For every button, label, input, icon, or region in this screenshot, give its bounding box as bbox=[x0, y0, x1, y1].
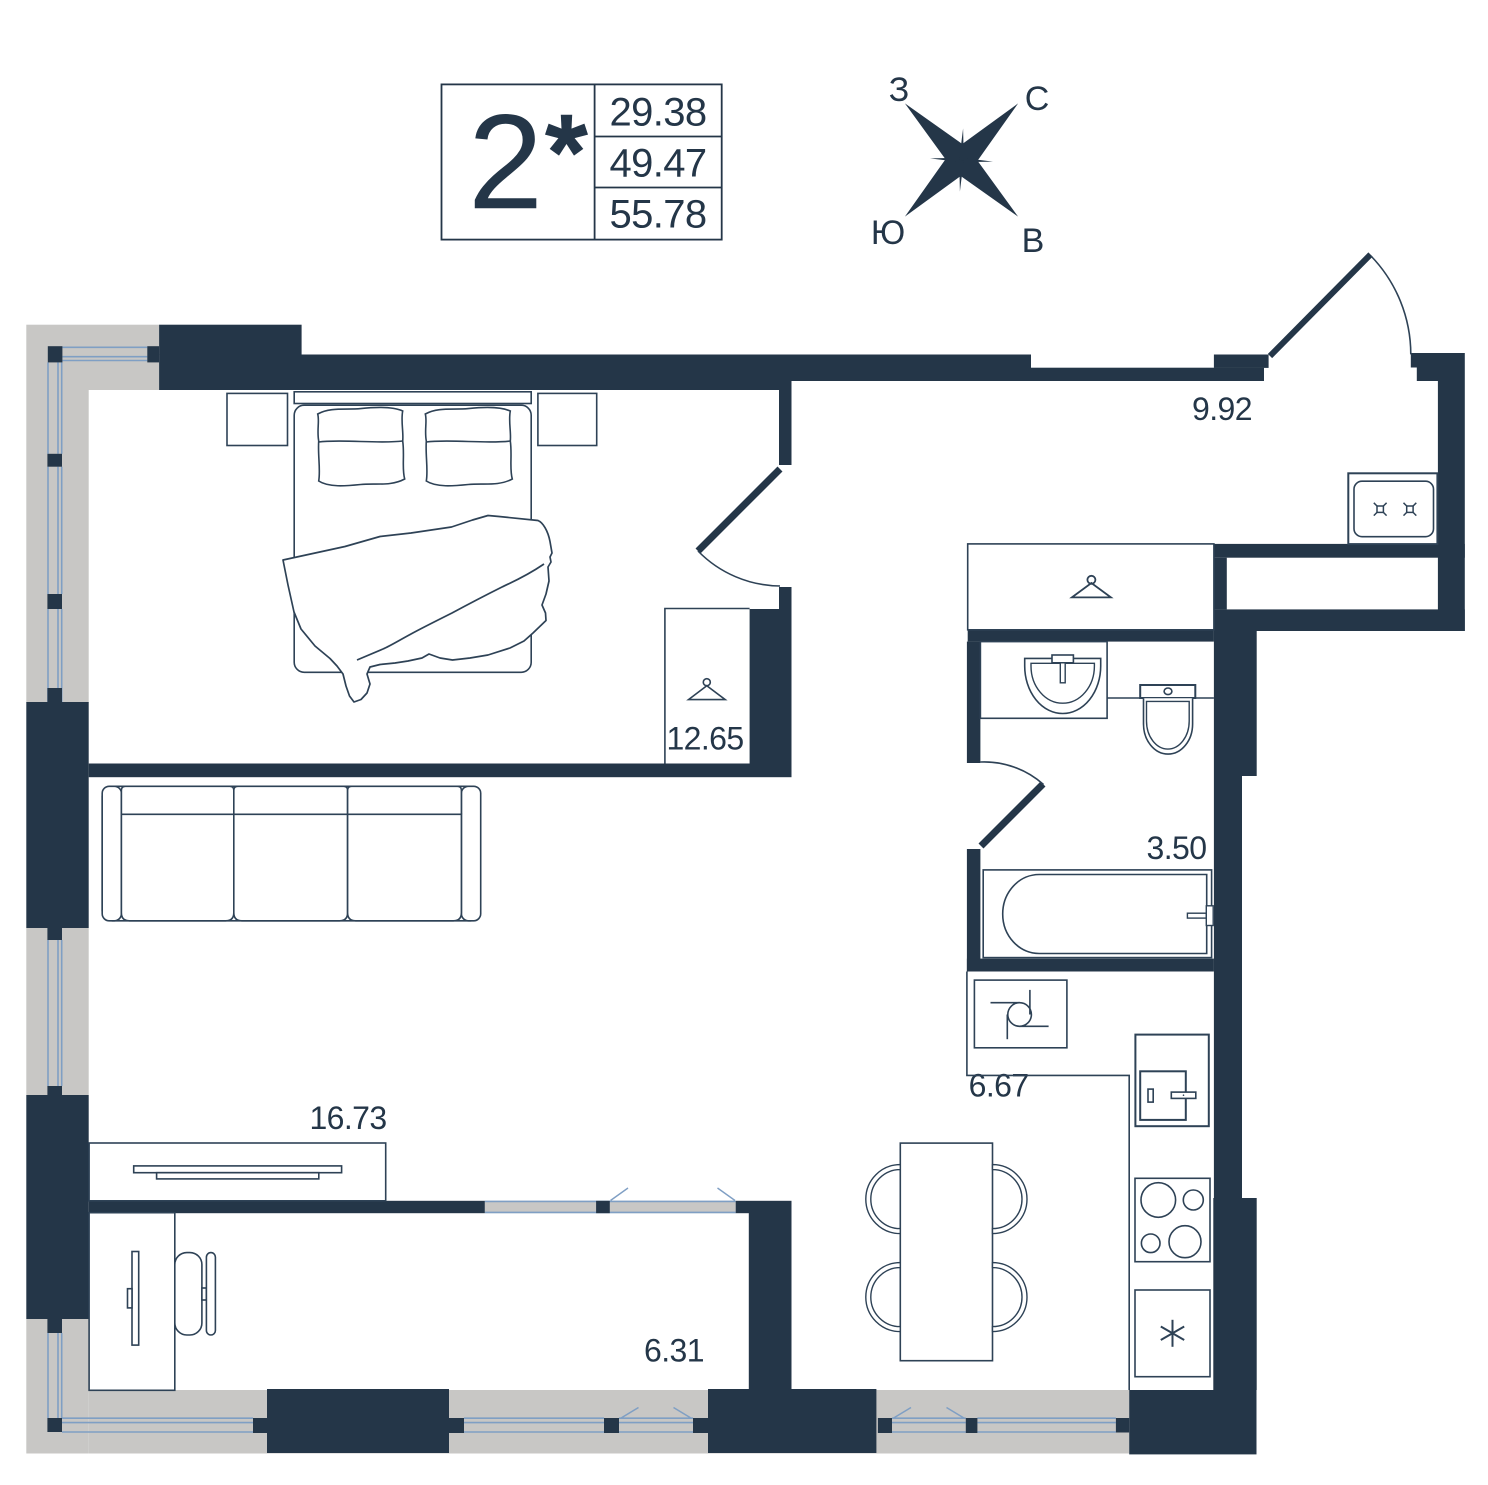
svg-text:В: В bbox=[1022, 222, 1045, 260]
svg-text:6.31: 6.31 bbox=[644, 1333, 704, 1369]
svg-text:2: 2 bbox=[468, 86, 543, 237]
svg-text:16.73: 16.73 bbox=[309, 1100, 386, 1136]
svg-text:29.38: 29.38 bbox=[609, 91, 706, 135]
svg-text:С: С bbox=[1025, 80, 1050, 118]
svg-text:6.67: 6.67 bbox=[969, 1068, 1029, 1104]
svg-text:9.92: 9.92 bbox=[1192, 391, 1252, 427]
svg-text:Ю: Ю bbox=[871, 214, 905, 252]
svg-text:49.47: 49.47 bbox=[609, 142, 706, 186]
svg-text:55.78: 55.78 bbox=[609, 193, 706, 237]
svg-text:12.65: 12.65 bbox=[666, 721, 743, 757]
svg-text:З: З bbox=[889, 71, 910, 109]
svg-text:3.50: 3.50 bbox=[1147, 830, 1207, 866]
